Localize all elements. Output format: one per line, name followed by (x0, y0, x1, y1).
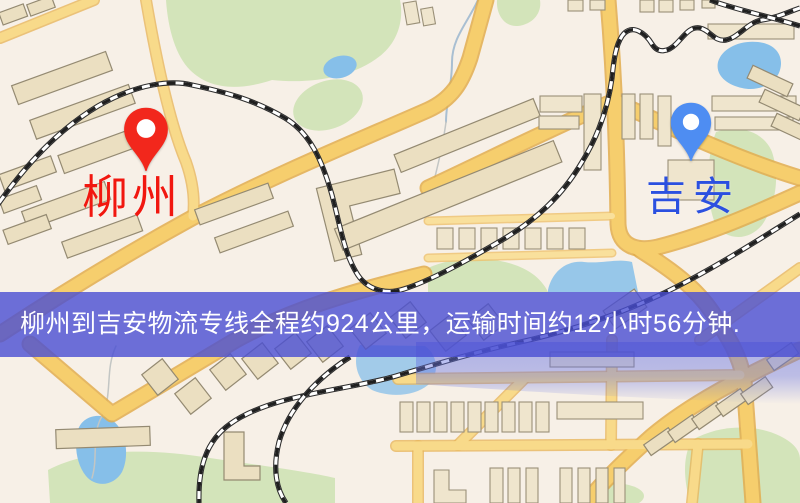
map-background (0, 0, 800, 503)
origin-pin-shape (124, 108, 168, 171)
destination-label: 吉安 (646, 177, 740, 217)
route-info-text: 柳州到吉安物流专线全程约924公里，运输时间约12小时56分钟. (0, 292, 800, 357)
origin-pin[interactable] (121, 106, 171, 173)
origin-label: 柳州 (82, 174, 182, 220)
route-info-banner: 柳州到吉安物流专线全程约924公里，运输时间约12小时56分钟. (0, 292, 800, 357)
destination-pin-shape (671, 103, 711, 161)
destination-pin-hole (683, 114, 699, 130)
origin-pin-hole (137, 119, 156, 138)
destination-pin[interactable] (668, 101, 714, 163)
map-view: 柳州 吉安 柳州到吉安物流专线全程约924公里，运输时间约12小时56分钟. (0, 0, 800, 503)
